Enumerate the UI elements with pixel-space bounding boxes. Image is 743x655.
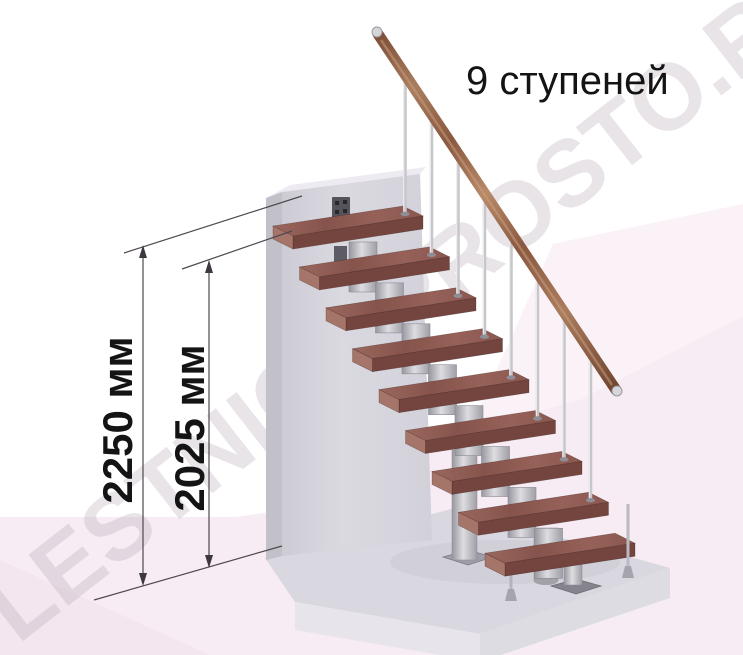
dimension-label-2025: 2025 мм [166,344,213,511]
step-count-label: 9 ступеней [466,59,669,103]
baluster-base [401,212,410,216]
baluster-base [560,457,569,461]
handrail-cap-top [372,27,382,37]
baluster-base [454,294,463,298]
baluster-base [507,375,516,379]
staircase-diagram: LESTNICY-PROSTO.RU [0,0,743,655]
dimension-label-2250: 2250 мм [94,336,141,503]
baluster-base [480,335,489,339]
staircase-illustration: LESTNICY-PROSTO.RU [0,0,743,655]
baluster-base [533,416,542,420]
baluster-base [586,498,595,502]
handrail-cap-bottom [612,386,622,396]
baluster-base [427,253,436,257]
wall-left-face [266,192,282,560]
